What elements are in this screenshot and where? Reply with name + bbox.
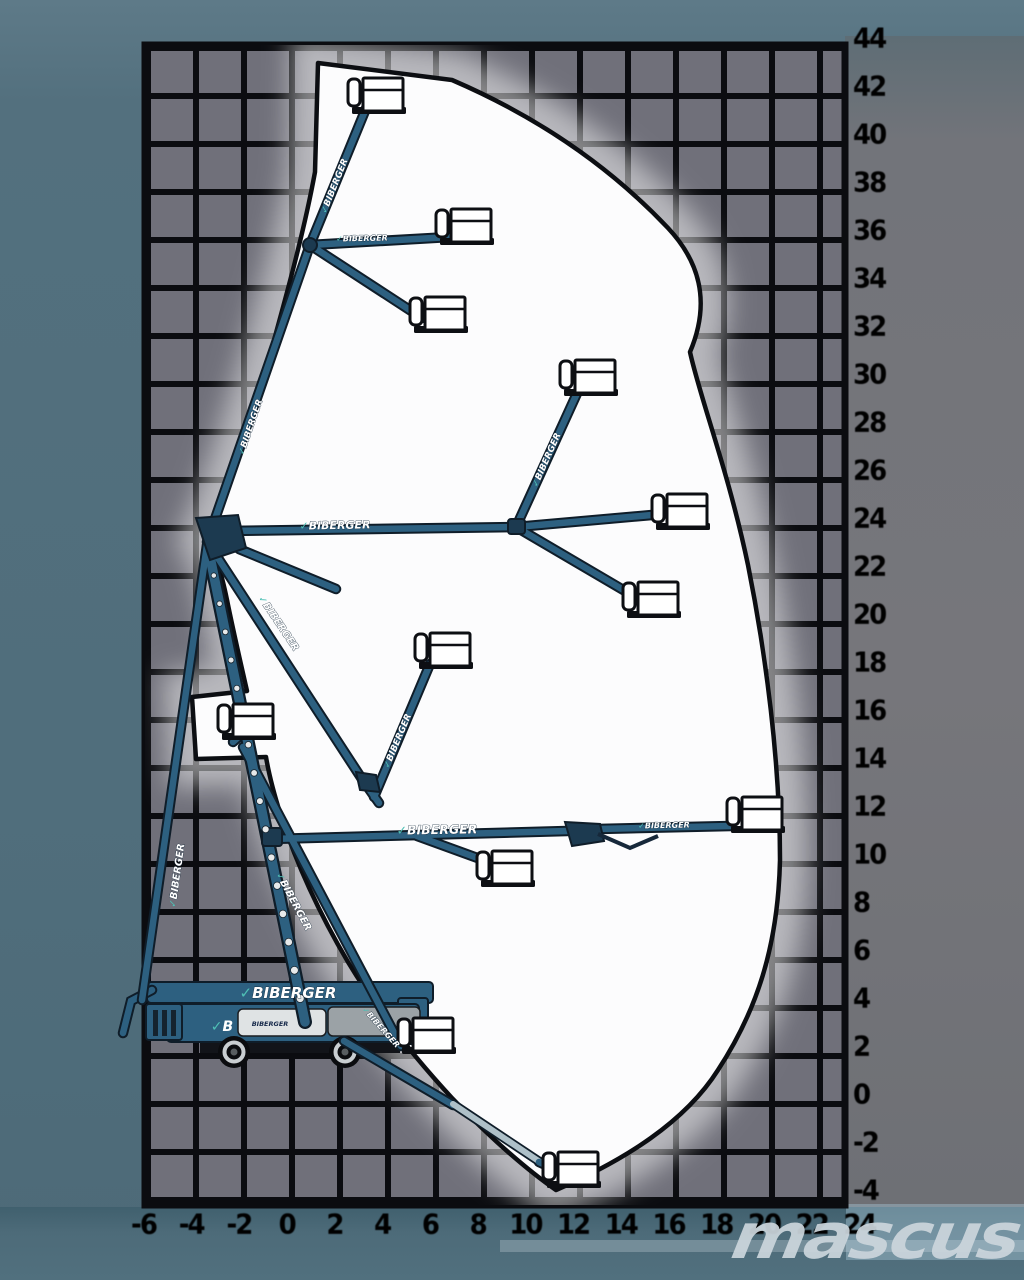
- basket-top: [348, 78, 406, 114]
- bottom-axis-label: 0: [261, 1211, 313, 1238]
- basket-lowest: [543, 1152, 601, 1188]
- right-axis-label: 12: [853, 793, 917, 820]
- bottom-axis-label: 8: [452, 1211, 504, 1238]
- mast-hole: [234, 685, 240, 691]
- basket-mast-side: [218, 704, 276, 740]
- right-axis-label: 26: [853, 457, 917, 484]
- mast-hole: [262, 826, 269, 833]
- right-axis-label: 4: [853, 985, 917, 1012]
- bottom-axis-label: 6: [404, 1211, 456, 1238]
- bottom-axis-label: -6: [118, 1211, 170, 1238]
- mid-elbow-joint: [508, 519, 525, 534]
- mast-hole: [245, 741, 251, 747]
- right-axis-label: 32: [853, 313, 917, 340]
- mast-hole: [256, 798, 263, 805]
- brand-label: ✓BIBERGER: [638, 821, 690, 831]
- basket-upper-low: [410, 297, 468, 333]
- mast-hole: [217, 601, 223, 607]
- bottom-axis-label: -2: [213, 1211, 265, 1238]
- upper-elbow-joint: [303, 238, 317, 252]
- right-axis-label: 14: [853, 745, 917, 772]
- right-axis-label: 30: [853, 361, 917, 388]
- basket-mid-down: [623, 582, 681, 618]
- right-axis-label: 22: [853, 553, 917, 580]
- mast-hole: [211, 573, 216, 578]
- right-axis-label: 16: [853, 697, 917, 724]
- basket-mid-right: [652, 494, 710, 530]
- bottom-axis-label: -4: [165, 1211, 217, 1238]
- basket-upper-right: [436, 209, 494, 245]
- brand-label: ✓BIBERGER: [396, 821, 477, 837]
- right-axis-label: 6: [853, 937, 917, 964]
- brand-label-stowed: ✓BIBERGER: [240, 984, 337, 1002]
- bottom-axis-label: 2: [308, 1211, 360, 1238]
- right-axis-label: 34: [853, 265, 917, 292]
- right-axis-label: 2: [853, 1033, 917, 1060]
- right-axis-label: 42: [853, 73, 917, 100]
- basket-center: [415, 633, 473, 669]
- mascus-watermark: mascus: [727, 1204, 1024, 1267]
- mast-hole: [251, 770, 258, 777]
- right-axis-label: 44: [853, 25, 917, 52]
- bottom-axis-label: 4: [356, 1211, 408, 1238]
- basket-low: [398, 1018, 456, 1054]
- bottom-axis-label: 12: [547, 1211, 599, 1238]
- right-axis-label: 36: [853, 217, 917, 244]
- reach-diagram-canvas: ✓B BIBERGER: [0, 0, 1024, 1280]
- basket-max-reach: [727, 797, 785, 833]
- bottom-axis-label: 14: [595, 1211, 647, 1238]
- bottom-axis-label: 16: [643, 1211, 695, 1238]
- brand-label: ✓BIBERGER: [336, 234, 388, 244]
- right-axis-label: 28: [853, 409, 917, 436]
- right-axis-label: -2: [853, 1129, 917, 1156]
- basket-mid-up: [560, 360, 618, 396]
- mast-hole: [291, 966, 299, 974]
- right-axis-label: 20: [853, 601, 917, 628]
- grille-bar: [162, 1010, 167, 1036]
- right-axis-label: 24: [853, 505, 917, 532]
- rear-wheel: [218, 1036, 250, 1068]
- mast-hole: [228, 657, 234, 663]
- right-axis-label: 10: [853, 841, 917, 868]
- mast-hole: [268, 854, 275, 861]
- mast-hole: [222, 629, 228, 635]
- right-axis-label: 18: [853, 649, 917, 676]
- grille-bar: [153, 1010, 158, 1036]
- cover-brand-label: BIBERGER: [252, 1020, 289, 1028]
- right-axis-label: 40: [853, 121, 917, 148]
- bottom-axis-label: 10: [499, 1211, 551, 1238]
- mast-hole: [285, 938, 293, 946]
- basket-low-folded: [477, 851, 535, 887]
- brand-label: ✓BIBERGER: [299, 518, 370, 532]
- right-axis-label: 8: [853, 889, 917, 916]
- right-axis-label: 0: [853, 1081, 917, 1108]
- diag-elbow-joint: [356, 772, 380, 792]
- machine-logo: ✓B: [211, 1019, 233, 1035]
- mast-hole: [279, 910, 287, 918]
- grille-bar: [171, 1010, 176, 1036]
- right-axis-label: 38: [853, 169, 917, 196]
